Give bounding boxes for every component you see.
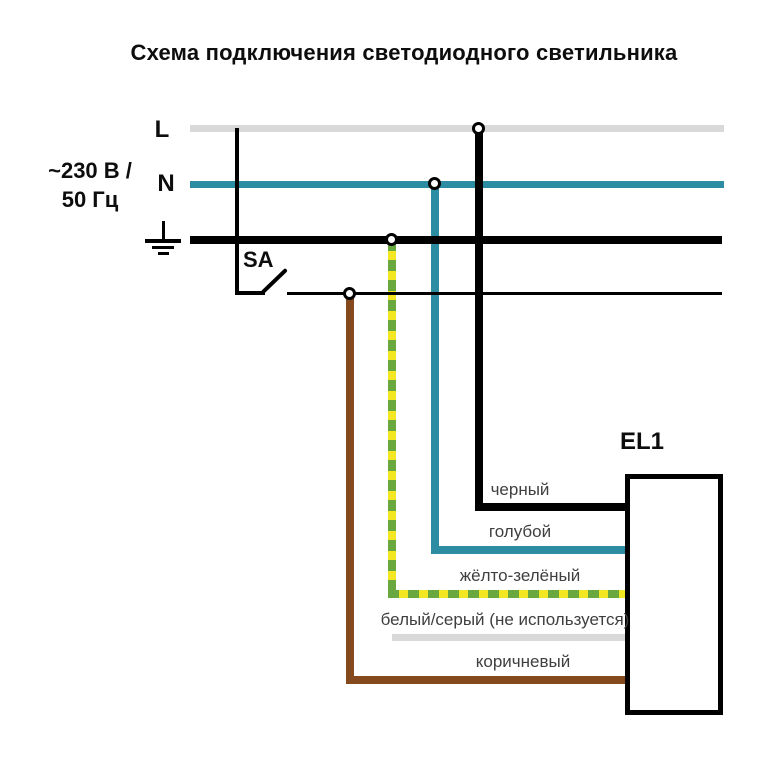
wire-blue-horizontal — [431, 546, 630, 554]
ground-stem — [162, 221, 165, 241]
bus-line-pe — [190, 236, 722, 244]
ground-bar-medium — [152, 246, 174, 249]
wire-brown-vertical — [346, 294, 354, 684]
junction-dot-switched — [343, 287, 356, 300]
ground-bar-long — [145, 239, 181, 243]
ground-bar-short — [158, 252, 169, 255]
wire-yellow-green-horizontal — [388, 590, 630, 598]
switch-feed-wire — [235, 128, 239, 294]
bus-line-l — [190, 125, 724, 132]
luminaire-box — [625, 474, 723, 715]
wire-label-black: черный — [420, 480, 620, 500]
line-n-label: N — [152, 170, 180, 198]
wire-label-white-gray: белый/серый (не используется) — [355, 610, 655, 630]
wiring-diagram: Схема подключения светодиодного светильн… — [0, 0, 768, 768]
wire-brown-horizontal — [346, 676, 630, 684]
switch-label: SA — [243, 247, 274, 273]
wire-black-horizontal — [475, 503, 630, 511]
wire-label-blue: голубой — [420, 522, 620, 542]
wire-label-brown: коричневый — [423, 652, 623, 672]
wire-black-vertical — [475, 129, 483, 511]
page-title: Схема подключения светодиодного светильн… — [40, 40, 768, 66]
bus-line-n — [190, 181, 724, 188]
wire-white-gray-stub — [392, 634, 630, 641]
supply-voltage-label: ~230 В / 50 Гц — [24, 156, 156, 214]
supply-voltage-line2: 50 Гц — [24, 185, 156, 214]
line-l-label: L — [148, 116, 176, 144]
junction-dot-pe — [385, 233, 398, 246]
luminaire-label: EL1 — [616, 428, 668, 456]
junction-dot-l — [472, 122, 485, 135]
supply-voltage-line1: ~230 В / — [24, 156, 156, 185]
junction-dot-n — [428, 177, 441, 190]
wire-label-yellow-green: жёлто-зелёный — [420, 566, 620, 586]
